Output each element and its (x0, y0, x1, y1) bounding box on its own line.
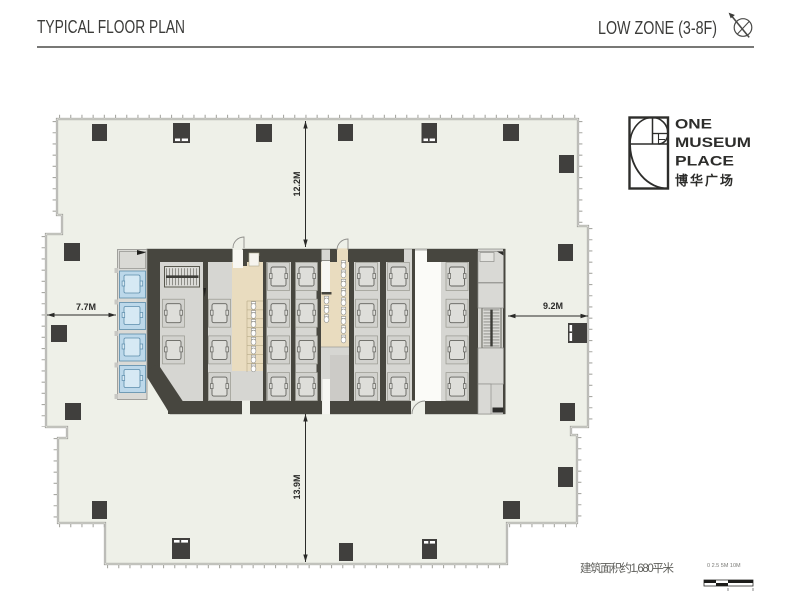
svg-text:0 2.5 5M 10M: 0 2.5 5M 10M (707, 563, 741, 569)
svg-text:12.2M: 12.2M (292, 171, 302, 196)
svg-text:9.2M: 9.2M (543, 301, 563, 311)
svg-text:博华广场: 博华广场 (675, 173, 735, 188)
svg-text:建筑面积约1,680平米: 建筑面积约1,680平米 (580, 561, 675, 575)
svg-text:LOW ZONE (3-8F): LOW ZONE (3-8F) (598, 18, 717, 38)
svg-text:MUSEUM: MUSEUM (675, 134, 751, 150)
svg-text:7.7M: 7.7M (76, 302, 96, 312)
svg-text:PLACE: PLACE (675, 153, 734, 169)
svg-text:ONE: ONE (675, 116, 712, 132)
svg-text:TYPICAL FLOOR PLAN: TYPICAL FLOOR PLAN (37, 17, 185, 37)
svg-text:13.9M: 13.9M (292, 474, 302, 499)
